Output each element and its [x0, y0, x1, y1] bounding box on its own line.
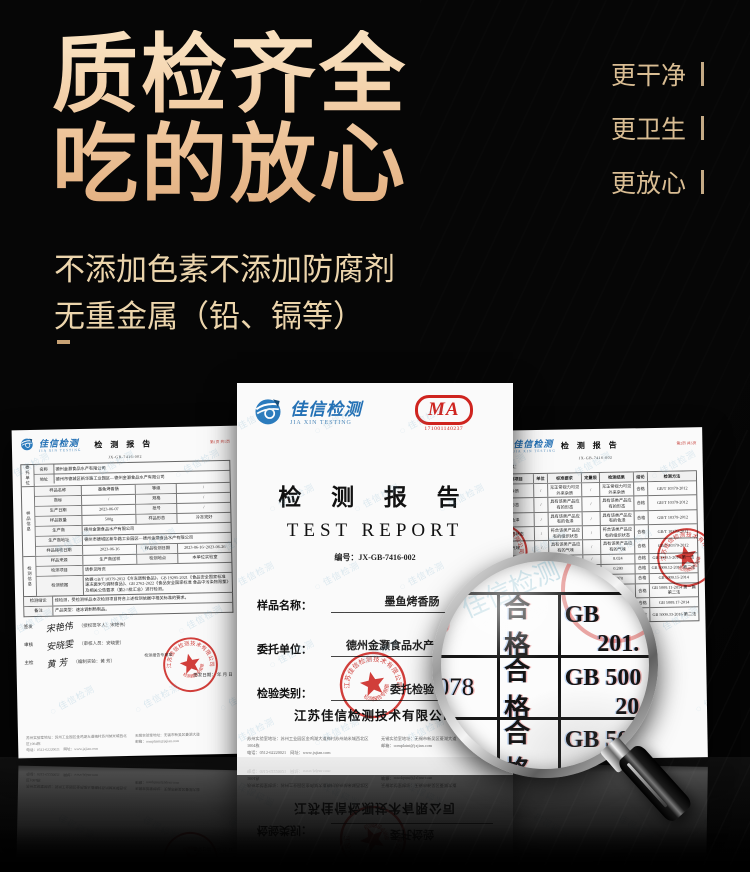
table-cell: /	[582, 483, 600, 497]
table-cell: /	[177, 493, 230, 503]
jiaxin-logo-icon	[20, 437, 34, 456]
table-cell: 样品检测日期	[137, 544, 178, 554]
watermark-text: ◌ 佳信检测	[47, 682, 97, 718]
jiaxin-logo-text: 佳信检测JIA XIN TESTING	[513, 439, 556, 453]
signature-name: 黄 芳	[46, 655, 68, 671]
info-section-label: 检测信息	[23, 557, 37, 596]
table-cell: GB/T 10379-2012	[648, 496, 696, 510]
magnified-cell-code: 16	[441, 720, 500, 769]
table-cell: 样品来源	[36, 556, 83, 566]
signature-name: 安晓雯	[45, 637, 73, 653]
table-cell: 500g	[82, 515, 137, 525]
magnified-cell-standard: GB201.	[561, 595, 649, 655]
standard-line-1: GB	[565, 601, 649, 630]
signature-label: 主检	[24, 660, 40, 666]
field-label: 检验类别：	[257, 685, 331, 701]
table-cell: 生产商	[36, 526, 83, 536]
table-cell: 无正常视力可见外来杂质	[600, 482, 634, 496]
table-cell: 2023-06-16	[83, 545, 138, 555]
signature-row: 主检黄 芳（编制实验：黄 芳）	[24, 653, 234, 670]
signature-note: （审核人员：安晓雯）	[79, 640, 124, 647]
table-cell: 2023-06-16~2023-06-26	[178, 543, 231, 553]
certificate-left-footer: 苏州实验室地址：苏州工业园区金鸡湖大道梅村苏州纳米城西北区1004栋电话：051…	[26, 730, 236, 753]
table-cell: 生产商地址	[36, 536, 83, 546]
client-addr-label: 地址	[35, 475, 55, 484]
page-label: 第1页 共5页	[210, 440, 230, 445]
page-label: 第2页 共5页	[676, 441, 696, 446]
table-cell: /	[82, 495, 137, 505]
table-cell: 生产日期	[35, 506, 82, 516]
watermark-text: ◌ 佳信检测	[654, 758, 704, 760]
table-cell: /	[535, 513, 549, 527]
cma-mark: MA171001140237	[415, 395, 473, 432]
table-cell: 合格	[634, 496, 648, 510]
table-cell: /	[177, 503, 230, 513]
standard-line-2: 20	[565, 693, 649, 718]
jiaxin-logo-text: 佳信检测JIA XIN TESTING	[290, 401, 362, 426]
column-header: 检测方法	[648, 471, 696, 481]
table-cell: 符合该类产品应有的组织状态	[601, 525, 635, 539]
footer-address-2: 无锡实验室地址：无锡市新吴区菱湖大道	[135, 732, 200, 737]
issue-date-line: 签发日期： 年 月 日	[193, 672, 232, 679]
table-cell: 规格	[136, 494, 177, 504]
table-cell: /	[582, 497, 600, 511]
table-cell: /	[535, 527, 549, 541]
table-cell: 无正常视力可见外来杂质	[548, 483, 582, 497]
magnified-row: 0合格GB201.	[441, 592, 649, 655]
standard-line-2: 201.	[565, 630, 649, 655]
signature-note: （编制实验：黄 芳）	[73, 659, 115, 666]
table-cell: 等级	[136, 484, 177, 494]
standard-line-1: GB 500	[565, 664, 649, 693]
field-label: 委托单位：	[257, 641, 331, 657]
table-cell: GB/T 10379-2012	[649, 539, 697, 553]
table-cell: 符合该类产品应有的组织状态	[549, 526, 583, 540]
table-cell: GB/T 10379-2012	[649, 524, 697, 538]
certificate-center-header: 佳信检测JIA XIN TESTING MA171001140237	[253, 395, 497, 432]
table-cell: 生产商送样	[83, 555, 138, 565]
watermark-text: ◌ 佳信检测	[312, 558, 362, 593]
table-cell: 具有该类产品应有的形态	[600, 497, 634, 511]
conclusion-table: 检测结论经检测，受检测样品本次检测项目符合上述检测依据中相关标准的要求。 备注产…	[23, 593, 233, 617]
table-cell: /	[583, 526, 601, 540]
table-cell: 检测地点	[138, 554, 179, 564]
watermark-text: ◌ 佳信检测	[693, 680, 708, 715]
table-cell: /	[583, 512, 601, 526]
jiaxin-logo-icon	[253, 396, 283, 431]
footer-web: 网址：www.jxjian.com	[290, 750, 330, 755]
footer-mail: 邮箱：complaint@jxjian.com	[135, 739, 179, 744]
jiaxin-logo-text: 佳信检测JIA XIN TESTING	[39, 439, 82, 453]
table-cell: 合格	[634, 482, 648, 496]
table-cell: 合格	[635, 511, 649, 525]
table-cell: 具有该类产品应有的色泽	[549, 512, 583, 526]
report-title: 检 测 报 告	[94, 438, 153, 450]
magnified-cell-result: 合格	[500, 658, 561, 718]
signature-area: 签发宋艳伟（授权签字人：宋艳伟）审核安晓雯（审核人员：安晓雯）主检黄 芳（编制实…	[24, 617, 235, 670]
column-header: 标准要求	[548, 473, 582, 483]
footer-mail: 邮箱：complaint@jxjian.com	[381, 743, 432, 748]
table-cell: 检测项目	[36, 566, 83, 576]
field-label: 样品名称：	[257, 597, 331, 613]
results-note: 检测结果：	[497, 461, 697, 470]
stamp-note: 检测报告专用章	[144, 652, 172, 659]
table-cell: 具有该类产品应有的形态	[548, 498, 582, 512]
cma-logo: MA	[415, 395, 473, 425]
sample-info-table: 样品名称墨鱼烤香肠等级/商标/规格/生产日期2023-06-07批号/样品数量5…	[35, 483, 231, 556]
column-header: 定量限	[582, 473, 600, 482]
table-cell: 墨鱼烤香肠	[82, 485, 137, 495]
footer-address: 苏州实验室地址：苏州工业园区金鸡湖大道梅村苏州纳米城西北区1004栋	[26, 734, 127, 746]
signature-name: 宋艳伟	[45, 619, 73, 635]
signature-label: 签发	[24, 624, 40, 630]
footer-web: 网址：www.jxjian.com	[63, 747, 98, 752]
table-cell: GB/T 10379-2012	[649, 510, 697, 524]
table-cell: 检测依据	[37, 576, 84, 596]
table-cell: 具有该类产品应有的色泽	[601, 511, 635, 525]
signature-label: 审核	[24, 642, 40, 648]
report-title: 检 测 报 告	[561, 440, 620, 452]
signature-note: （授权签字人：宋艳伟）	[79, 622, 129, 629]
table-cell: /	[534, 498, 548, 512]
test-info-table: 样品来源生产商送样检测地点本单位实验室检测项目请参见附页检测依据依据 GB/T …	[36, 553, 232, 596]
magnified-row: 078合格GB 50020	[441, 655, 649, 718]
table-cell: 2023-06-07	[82, 505, 137, 515]
magnified-cell-code: 078	[441, 658, 500, 718]
cma-number: 171001140237	[415, 426, 473, 432]
client-table: 委托单位 名称德州金灏食品水产有限公司 地址德州市德城区新华路工业园区—德州金灏…	[20, 460, 233, 597]
client-section-label: 委托单位	[21, 465, 34, 486]
table-cell: 合格	[635, 525, 649, 539]
table-cell: 样品接收日期	[36, 546, 83, 556]
client-name-label: 名称	[34, 465, 54, 474]
column-header: 结论	[634, 472, 648, 481]
table-cell: 本单位实验室	[179, 553, 232, 563]
report-title-cn: 检 测 报 告	[253, 478, 497, 512]
report-title-en: TEST REPORT	[253, 520, 497, 542]
column-header: 单位	[534, 474, 548, 483]
table-cell: 样品名称	[35, 486, 82, 496]
table-cell: 依据 GB/T 10379-2012《冷冻调制食品》、GB 19295-2021…	[83, 573, 232, 595]
footer-address: 苏州实验室地址：苏州工业园区金鸡湖大道梅村苏州纳米城西北区1004栋	[247, 736, 368, 748]
magnified-cell-code: 0	[441, 595, 500, 655]
table-cell: 批号	[137, 504, 178, 514]
signature-row: 签发宋艳伟（授权签字人：宋艳伟）	[24, 617, 234, 634]
table-cell: 商标	[35, 496, 82, 506]
table-cell: 冷冻完好	[178, 513, 231, 523]
table-cell: 样品形态	[137, 514, 178, 524]
conclusion-label: 检测结论	[24, 596, 53, 606]
table-cell: /	[534, 484, 548, 498]
certificate-right-header: 佳信检测JIA XIN TESTING 检 测 报 告 第2页 共5页	[494, 434, 696, 457]
table-cell: /	[177, 483, 230, 493]
watermark-text: ◌ 佳信检测	[237, 558, 277, 593]
footer-tel: 电话：0512-62220021	[247, 750, 286, 755]
signature-row: 审核安晓雯（审核人员：安晓雯）	[24, 635, 234, 652]
footer-tel: 电话：0512-62220021	[26, 747, 60, 752]
magnified-cell-result: 合格	[500, 720, 561, 769]
magnified-cell-result: 合格	[500, 595, 561, 655]
column-header: 检测结果	[600, 472, 634, 482]
remark-label: 备注	[24, 606, 53, 616]
table-cell: GB/T 10379-2012	[648, 481, 696, 495]
watermark-text: ◌ 佳信检测	[132, 680, 182, 716]
magnified-cell-standard: GB 50020	[561, 658, 649, 718]
watermark-text: ◌ 佳信检测	[179, 757, 229, 758]
certificate-left: 佳信检测JIA XIN TESTING 检 测 报 告 第1页 共5页 JX-G…	[12, 426, 245, 759]
promo-banner: 质检齐全吃的放心 更干净更卫生更放心 不添加色素不添加防腐剂无重金属（铅、镉等）…	[0, 0, 750, 872]
table-cell: 样品数量	[35, 516, 82, 526]
